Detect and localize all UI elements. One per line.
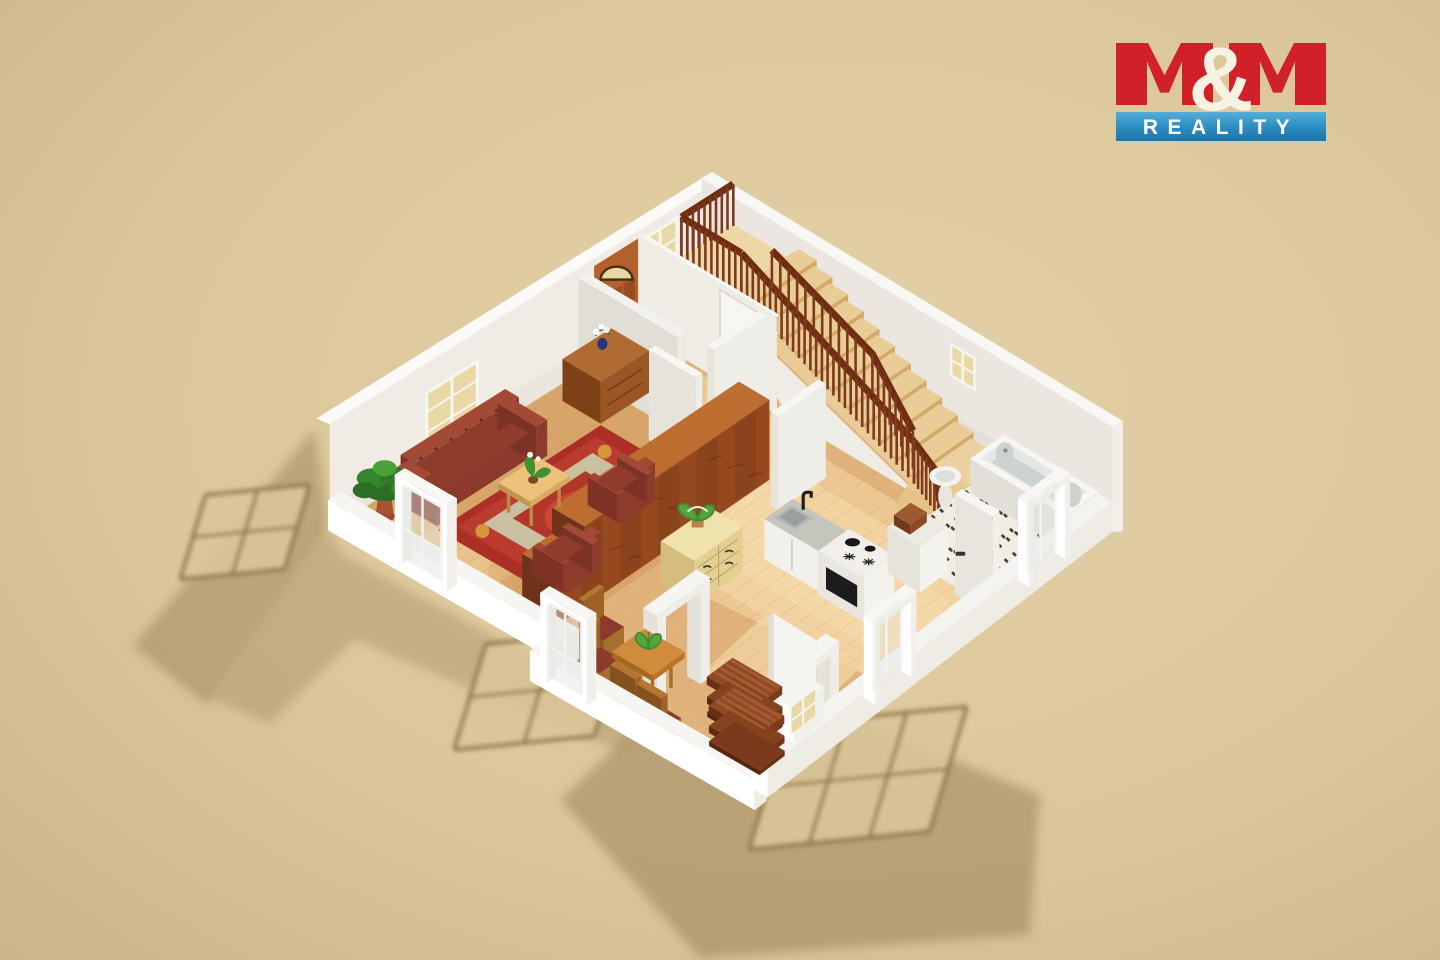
svg-text:REALITY: REALITY <box>1143 116 1299 139</box>
